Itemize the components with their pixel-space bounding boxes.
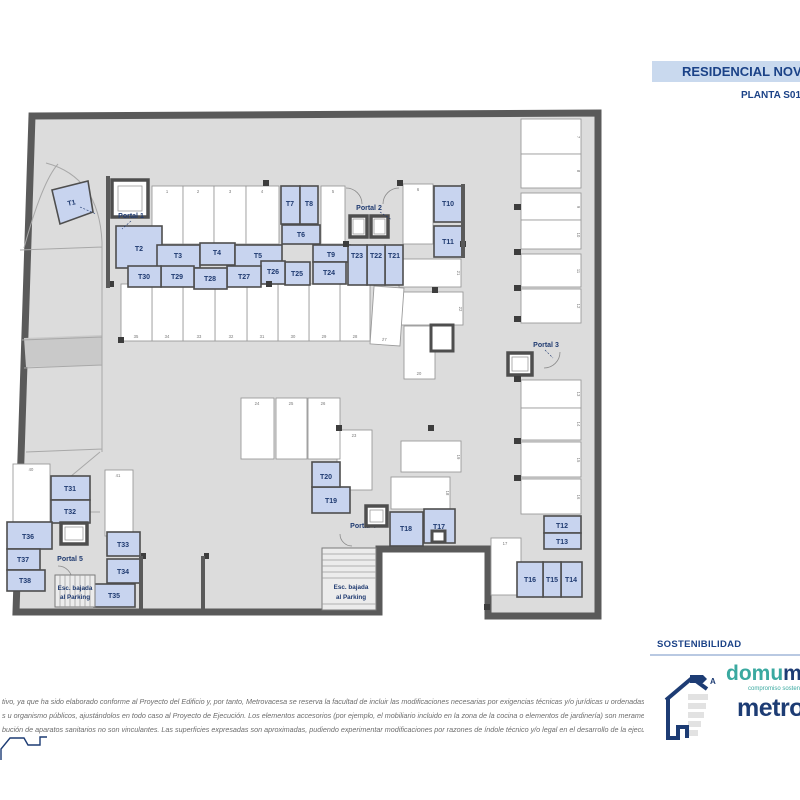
svg-text:13: 13	[576, 392, 581, 397]
svg-text:T37: T37	[17, 557, 29, 564]
parking-space-12: 12	[521, 289, 581, 323]
energy-bar	[688, 730, 698, 736]
parking-space-35: 35	[121, 284, 152, 341]
svg-text:T30: T30	[138, 274, 150, 281]
vent-shaft	[431, 325, 453, 351]
svg-text:T26: T26	[267, 269, 279, 276]
room-t15: T15	[543, 562, 561, 597]
room-t36: T36	[7, 522, 52, 549]
project-title-bar: RESIDENCIAL NOVA	[652, 61, 800, 82]
house-energy-icon: A	[660, 672, 718, 744]
parking-space-2: 2	[183, 186, 214, 244]
svg-text:Esc. bajada: Esc. bajada	[334, 584, 369, 591]
parking-space-9: 9	[521, 193, 581, 220]
svg-text:22: 22	[458, 307, 463, 312]
svg-text:al Parking: al Parking	[336, 594, 366, 601]
energy-bar	[688, 694, 708, 700]
parking-space-30: 30	[278, 284, 309, 341]
room-t16: T16	[517, 562, 543, 597]
parking-space-5: 5	[321, 186, 345, 244]
svg-text:Portal 1: Portal 1	[118, 213, 144, 220]
disclaimer-line-1: tivo, ya que ha sido elaborado conforme …	[2, 697, 644, 706]
parking-space-32: 32	[215, 284, 247, 341]
parking-space-14: 14	[521, 408, 581, 440]
parking-space-41: 41	[105, 470, 133, 536]
parking-space-6: 6	[403, 184, 433, 244]
svg-text:24: 24	[255, 401, 260, 406]
svg-text:T25: T25	[291, 271, 303, 278]
svg-text:T28: T28	[204, 276, 216, 283]
svg-text:T29: T29	[171, 274, 183, 281]
parking-space-16: 16	[521, 479, 581, 514]
svg-text:T9: T9	[327, 252, 335, 259]
svg-text:T3: T3	[174, 253, 182, 260]
svg-text:T24: T24	[323, 270, 335, 277]
svg-text:T22: T22	[370, 253, 382, 260]
disclaimer-line-3: bución de aparatos sanitarios no son vin…	[2, 725, 644, 734]
parking-space-31: 31	[247, 284, 278, 341]
room-t27: T27	[227, 266, 261, 287]
sustainability-heading: SOSTENIBILIDAD	[657, 639, 741, 650]
domum-wordmark: domu	[726, 662, 783, 685]
parking-space-8: 8	[521, 154, 581, 188]
room-t25: T25	[285, 262, 310, 285]
parking-space-7: 7	[521, 119, 581, 154]
room-t23: T23	[348, 245, 367, 285]
room-t38: T38	[7, 570, 45, 591]
svg-text:26: 26	[321, 401, 326, 406]
svg-text:28: 28	[353, 334, 358, 339]
room-t3: T3	[157, 245, 200, 268]
room-t9: T9	[313, 245, 350, 262]
room-t19: T19	[312, 487, 350, 513]
room-t8: T8	[300, 186, 318, 224]
room-t24: T24	[313, 262, 346, 284]
svg-text:34: 34	[165, 334, 170, 339]
parking-space-23: 23	[337, 430, 372, 490]
stairs-down-2: Esc. bajada al Parking	[322, 548, 376, 610]
svg-text:T13: T13	[556, 539, 568, 546]
svg-text:21: 21	[456, 271, 461, 276]
svg-text:T20: T20	[320, 474, 332, 481]
parking-space-27: 27	[370, 286, 404, 346]
disclaimer-line-2: s u organismo públicos, ajustándolos en …	[2, 711, 644, 720]
parking-space-19: 19	[401, 441, 461, 472]
elevator-icon	[366, 506, 387, 526]
parking-space-40: 40	[13, 464, 50, 526]
energy-bar	[688, 712, 704, 718]
svg-text:35: 35	[134, 334, 139, 339]
svg-text:T10: T10	[442, 201, 454, 208]
svg-text:Portal 2: Portal 2	[356, 205, 382, 212]
energy-letter: A	[710, 677, 716, 686]
svg-text:T11: T11	[442, 239, 454, 246]
parking-space-24: 24	[241, 398, 274, 459]
project-title: RESIDENCIAL NOVA	[652, 61, 800, 79]
svg-text:T19: T19	[325, 498, 337, 505]
room-t14: T14	[561, 562, 582, 597]
svg-text:23: 23	[352, 433, 357, 438]
svg-text:12: 12	[576, 304, 581, 309]
room-t28: T28	[194, 268, 227, 289]
room-t10: T10	[434, 186, 462, 222]
svg-text:T27: T27	[238, 274, 250, 281]
room-t32: T32	[51, 500, 90, 523]
svg-text:10: 10	[576, 233, 581, 238]
svg-text:T18: T18	[400, 526, 412, 533]
svg-text:40: 40	[29, 467, 34, 472]
svg-text:20: 20	[417, 371, 422, 376]
svg-text:33: 33	[197, 334, 202, 339]
room-t29: T29	[161, 266, 194, 287]
parking-space-26: 26	[308, 398, 340, 459]
svg-text:17: 17	[503, 541, 508, 546]
parking-space-22: 22	[401, 292, 463, 325]
svg-text:T16: T16	[524, 577, 536, 584]
svg-text:Portal 3: Portal 3	[533, 342, 559, 349]
vent-shaft	[432, 531, 445, 542]
stairs-down-1: Esc. bajada al Parking	[55, 575, 95, 607]
svg-text:30: 30	[291, 334, 296, 339]
svg-text:T21: T21	[388, 253, 400, 260]
svg-text:T36: T36	[22, 534, 34, 541]
svg-text:18: 18	[445, 491, 450, 496]
room-t35: T35	[94, 584, 135, 607]
svg-text:T23: T23	[351, 253, 363, 260]
metrovacesa-logo: metrova	[737, 694, 800, 723]
room-t20: T20	[312, 462, 340, 487]
svg-text:Esc. bajada: Esc. bajada	[58, 585, 93, 592]
room-t11: T11	[434, 226, 462, 257]
svg-text:T6: T6	[297, 232, 305, 239]
house-wall-outline	[668, 699, 687, 738]
svg-text:T8: T8	[305, 201, 313, 208]
room-t26: T26	[261, 261, 285, 284]
svg-text:T34: T34	[117, 569, 129, 576]
room-t13: T13	[544, 533, 581, 549]
svg-text:16: 16	[576, 495, 581, 500]
room-t31: T31	[51, 476, 90, 500]
parking-space-21: 21	[399, 259, 461, 287]
domum-tagline: compromiso sostenib	[748, 686, 800, 692]
room-t12: T12	[544, 516, 581, 533]
parking-space-25: 25	[276, 398, 307, 459]
svg-text:T12: T12	[556, 523, 568, 530]
room-t37: T37	[7, 549, 40, 570]
parking-space-29: 29	[309, 284, 340, 341]
room-t21: T21	[385, 245, 403, 285]
room-t4: T4	[200, 243, 235, 265]
parking-space-10: 10	[521, 220, 581, 249]
svg-text:T2: T2	[135, 246, 143, 253]
parking-space-33: 33	[183, 284, 215, 341]
svg-text:T32: T32	[64, 509, 76, 516]
svg-text:T7: T7	[286, 201, 294, 208]
plan-title: PLANTA S01	[741, 90, 800, 101]
parking-space-28: 28	[340, 284, 370, 341]
svg-text:T15: T15	[546, 577, 558, 584]
parking-space-11: 11	[521, 254, 581, 287]
room-t7: T7	[281, 186, 300, 224]
elevator-icon	[112, 180, 148, 217]
svg-text:T4: T4	[213, 250, 221, 257]
svg-text:T31: T31	[64, 486, 76, 493]
svg-text:32: 32	[229, 334, 234, 339]
svg-text:41: 41	[116, 473, 121, 478]
svg-text:T14: T14	[565, 577, 577, 584]
svg-text:T5: T5	[254, 253, 262, 260]
parking-space-15: 15	[521, 442, 581, 477]
svg-text:14: 14	[576, 422, 581, 427]
svg-text:19: 19	[456, 455, 461, 460]
svg-text:Portal 5: Portal 5	[57, 556, 83, 563]
parking-space-4: 4	[246, 186, 279, 244]
energy-arrow	[690, 675, 707, 683]
energy-bar	[688, 703, 706, 709]
svg-text:11: 11	[576, 269, 581, 274]
svg-text:29: 29	[322, 334, 327, 339]
room-t34: T34	[107, 559, 140, 583]
domum-logo: domum	[726, 662, 800, 686]
svg-text:T35: T35	[108, 593, 120, 600]
parking-space-18: 18	[391, 477, 450, 509]
room-t18: T18	[390, 512, 423, 546]
parking-space-34: 34	[152, 284, 183, 341]
plan-sheet: 1 2 3 4 5 6 7 8 9 10 11 12 13 14 15 16 1…	[0, 0, 800, 800]
room-t22: T22	[367, 245, 385, 285]
sustainability-divider	[650, 654, 800, 656]
corner-logo-fragment	[0, 735, 48, 761]
svg-text:25: 25	[289, 401, 294, 406]
svg-text:15: 15	[576, 458, 581, 463]
room-t6: T6	[282, 225, 320, 244]
room-t33: T33	[107, 532, 140, 556]
parking-space-13: 13	[521, 380, 581, 408]
room-t30: T30	[128, 266, 161, 287]
svg-text:T38: T38	[19, 578, 31, 585]
parking-space-3: 3	[214, 186, 246, 244]
svg-text:T33: T33	[117, 542, 129, 549]
energy-bar	[688, 721, 701, 727]
svg-text:al Parking: al Parking	[60, 594, 90, 601]
svg-text:31: 31	[260, 334, 265, 339]
room-t2: T2	[116, 226, 162, 268]
